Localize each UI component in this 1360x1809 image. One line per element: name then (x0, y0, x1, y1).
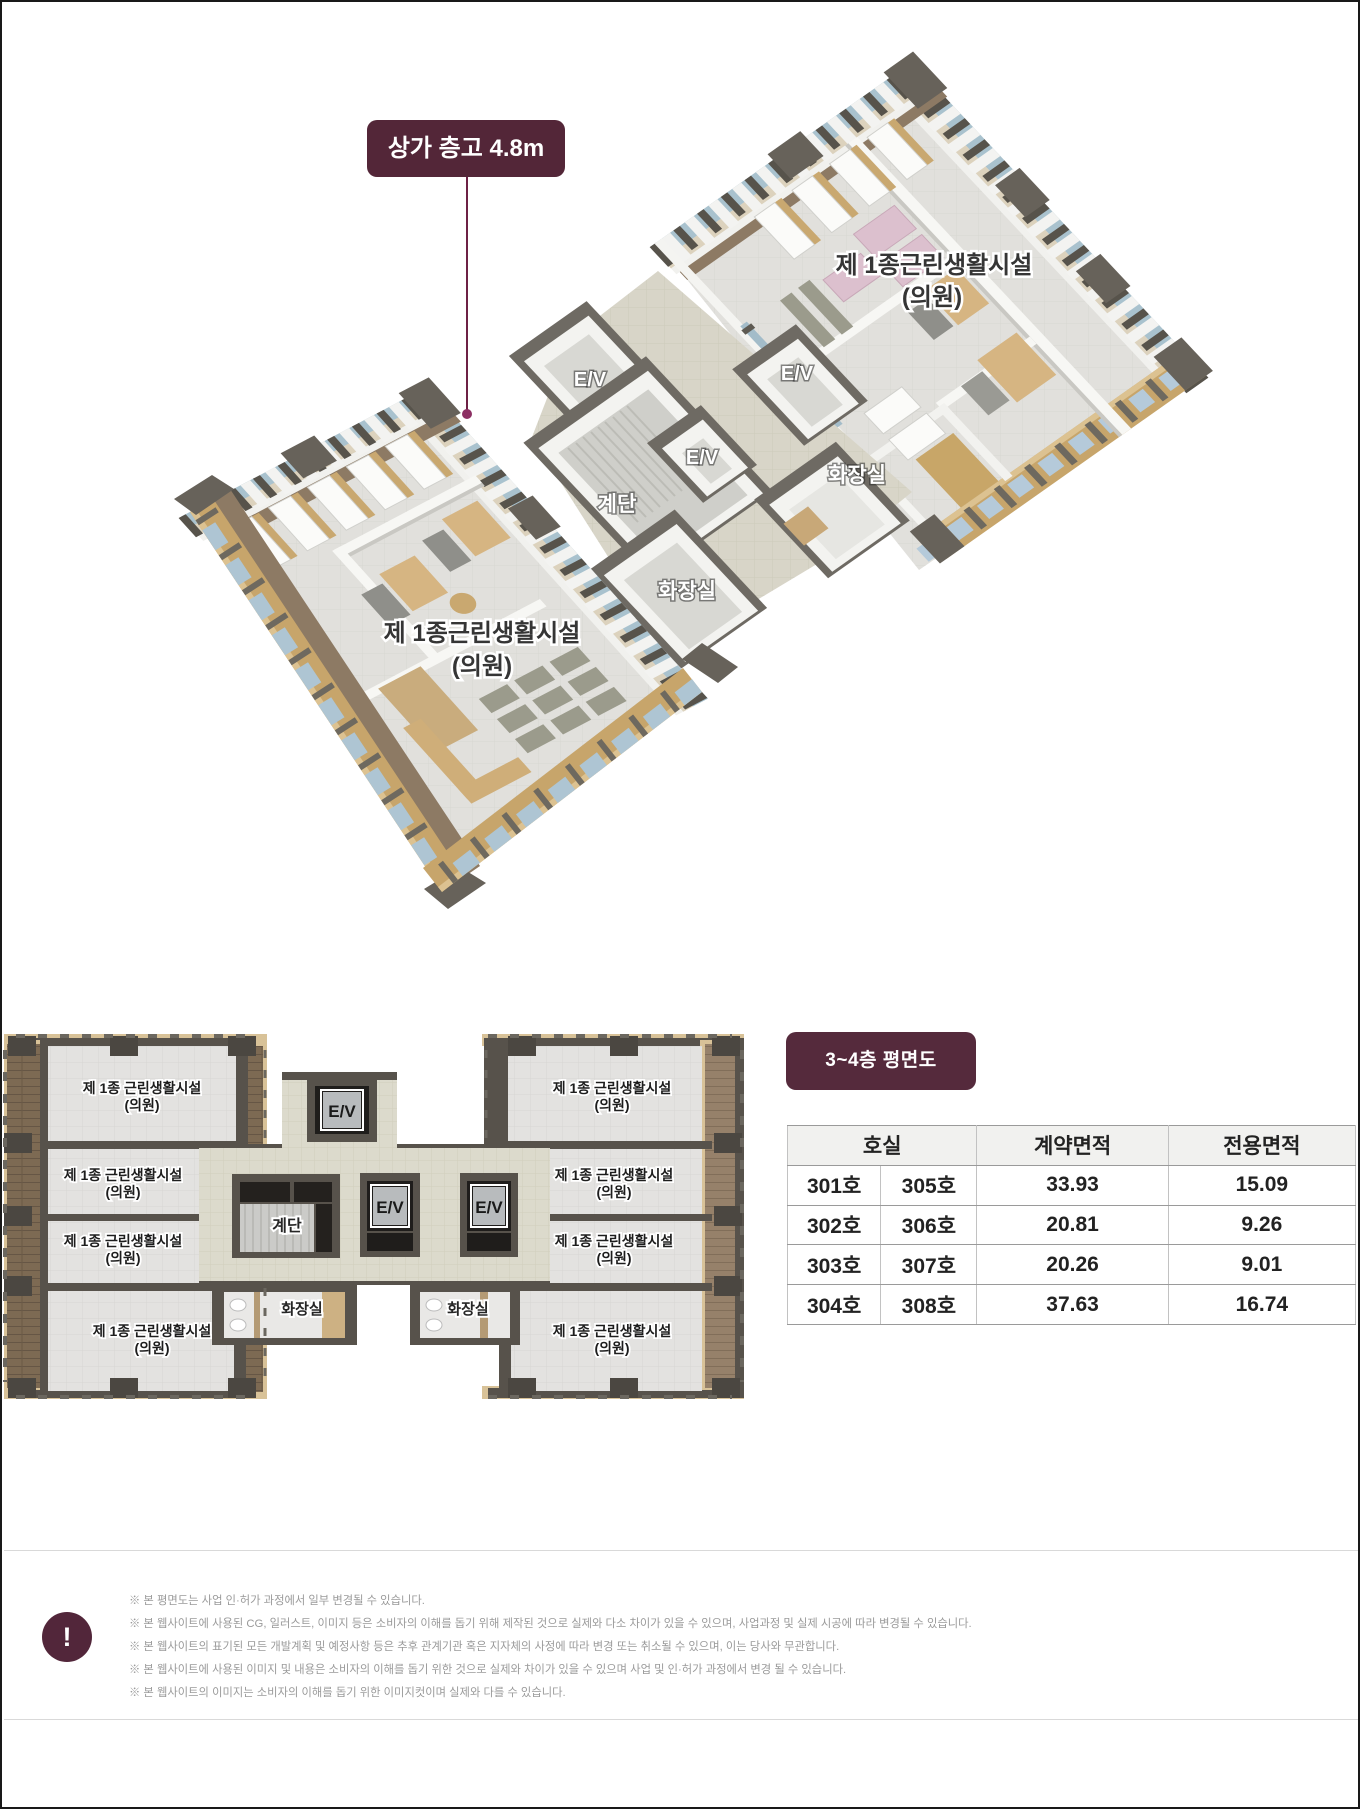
svg-text:(의원): (의원) (594, 1097, 629, 1113)
svg-text:제 1종근린생활시설: 제 1종근린생활시설 (384, 620, 581, 647)
svg-text:E/V: E/V (328, 1102, 356, 1121)
svg-text:제 1종 근린생활시설: 제 1종 근린생활시설 (64, 1167, 183, 1183)
svg-text:제 1종 근린생활시설: 제 1종 근린생활시설 (555, 1167, 674, 1183)
svg-text:(의원): (의원) (105, 1250, 140, 1266)
svg-text:(의원): (의원) (594, 1340, 629, 1356)
svg-text:계단: 계단 (272, 1216, 302, 1235)
svg-text:화장실: 화장실 (447, 1300, 488, 1318)
svg-text:제 1종 근린생활시설: 제 1종 근린생활시설 (83, 1080, 202, 1096)
svg-text:계단: 계단 (598, 493, 637, 516)
svg-text:제 1종 근린생활시설: 제 1종 근린생활시설 (553, 1080, 672, 1096)
svg-text:(의원): (의원) (452, 653, 512, 680)
svg-text:제 1종근린생활시설: 제 1종근린생활시설 (836, 252, 1033, 279)
svg-text:제 1종 근린생활시설: 제 1종 근린생활시설 (93, 1323, 212, 1339)
svg-text:화장실: 화장실 (658, 580, 716, 603)
svg-text:(의원): (의원) (596, 1250, 631, 1266)
svg-text:(의원): (의원) (124, 1097, 159, 1113)
svg-text:(의원): (의원) (134, 1340, 169, 1356)
svg-text:제 1종 근린생활시설: 제 1종 근린생활시설 (553, 1323, 672, 1339)
svg-text:E/V: E/V (574, 369, 607, 391)
svg-text:(의원): (의원) (105, 1184, 140, 1200)
svg-text:(의원): (의원) (902, 284, 962, 311)
svg-text:제 1종 근린생활시설: 제 1종 근린생활시설 (64, 1233, 183, 1249)
svg-text:E/V: E/V (781, 363, 814, 385)
svg-text:화장실: 화장실 (281, 1300, 322, 1318)
svg-text:(의원): (의원) (596, 1184, 631, 1200)
svg-text:제 1종 근린생활시설: 제 1종 근린생활시설 (555, 1233, 674, 1249)
svg-text:화장실: 화장실 (828, 464, 886, 487)
svg-text:E/V: E/V (376, 1198, 404, 1217)
svg-text:E/V: E/V (475, 1198, 503, 1217)
svg-text:E/V: E/V (686, 447, 719, 469)
